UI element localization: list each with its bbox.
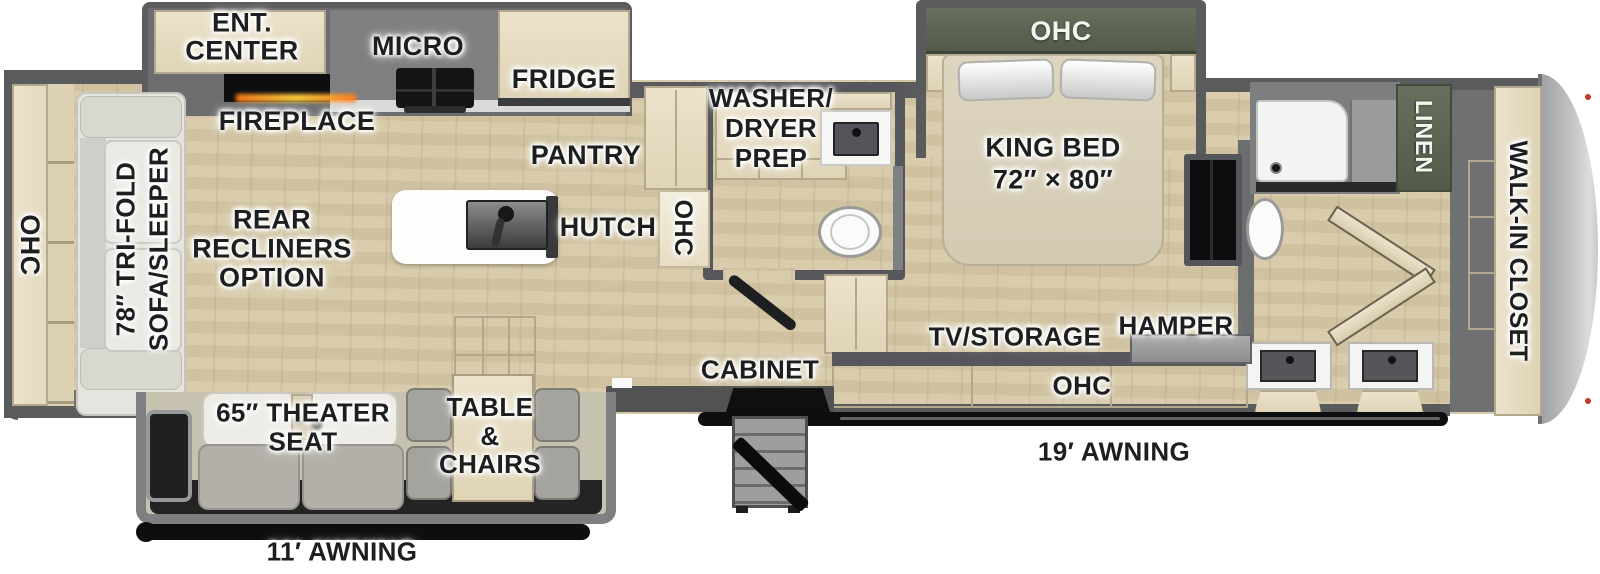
shower-glass-track: [1256, 182, 1396, 192]
label-awning-11: 11′ AWNING: [267, 538, 418, 565]
awning-rail-19-stripe: [840, 417, 1440, 420]
label-line: 65″ THEATER: [216, 398, 390, 427]
label-pantry: PANTRY: [531, 141, 641, 169]
shower-drain: [1270, 162, 1282, 174]
label-theater-seat: 65″ THEATER SEAT: [216, 398, 390, 455]
marker-light-bottom: [1585, 398, 1591, 404]
label-washer-dryer: WASHER/ DRYER PREP: [709, 84, 833, 174]
label-table-chairs: TABLE & CHAIRS: [439, 393, 541, 479]
fridge-counter-line: [498, 98, 630, 106]
cooktop: [396, 68, 474, 108]
label-tv-storage: TV/STORAGE: [929, 323, 1102, 350]
front-toilet: [1246, 198, 1284, 260]
cooktop-knobs: [404, 106, 466, 113]
label-line: &: [439, 422, 541, 451]
vanity-basin-left: [1260, 350, 1316, 382]
pillow-right: [1059, 58, 1156, 101]
label-ent-center: ENT. CENTER: [185, 9, 298, 66]
label-line: 78″ TRI-FOLD: [110, 147, 143, 351]
label-sofa: 78″ TRI-FOLD SOFA/SLEEPER: [110, 147, 175, 351]
label-line: KING BED: [985, 132, 1120, 164]
label-line: OPTION: [192, 264, 352, 293]
toilet-seat-ring: [830, 214, 870, 250]
label-line: WASHER/: [709, 84, 833, 114]
label-bottom-ohc: OHC: [1053, 372, 1112, 399]
label-line: TABLE: [439, 393, 541, 422]
step-cabinet-divider: [855, 278, 857, 350]
label-king-bed: KING BED 72″ × 80″: [985, 132, 1120, 197]
label-line: DRYER: [709, 114, 833, 144]
label-bed-ohc: OHC: [1030, 17, 1091, 45]
label-line: SEAT: [216, 427, 390, 456]
label-hutch: HUTCH: [560, 213, 657, 241]
bedroom-tv: [1190, 160, 1236, 260]
label-line: PREP: [709, 144, 833, 174]
rear-ohc-doors: [46, 84, 74, 406]
label-line: 72″ × 80″: [985, 164, 1120, 196]
label-fireplace: FIREPLACE: [219, 107, 376, 135]
bath-sink-faucet: [852, 128, 861, 137]
entry-door-opening: [726, 388, 830, 412]
pillow-left: [957, 58, 1054, 101]
label-line: CENTER: [185, 37, 298, 65]
vanity-faucet-left: [1286, 356, 1294, 364]
label-awning-19: 19′ AWNING: [1038, 438, 1190, 465]
dinette-window: [146, 410, 192, 502]
sofa-arm-top: [80, 96, 182, 138]
shower-glass: [1350, 100, 1396, 182]
label-line: REAR: [192, 205, 352, 234]
fireplace-glow: [236, 94, 356, 102]
label-mid-ohc: OHC: [670, 200, 696, 257]
label-hamper: HAMPER: [1118, 312, 1233, 339]
bottom-ohc-cabinet: [832, 364, 1248, 408]
pantry-divider: [675, 90, 677, 186]
vanity-faucet-right: [1388, 356, 1396, 364]
vanity-base-left: [1254, 390, 1322, 414]
awning-rail-11-cap: [136, 522, 156, 542]
vanity-base-right: [1356, 390, 1424, 414]
label-line: CHAIRS: [439, 450, 541, 479]
closet-dresser: [1468, 160, 1496, 330]
label-line: RECLINERS: [192, 234, 352, 263]
sofa-backrest: [80, 138, 106, 348]
sofa-arm-bottom: [80, 348, 182, 390]
marker-light-top: [1585, 94, 1591, 100]
label-walk-in-closet: WALK-IN CLOSET: [1505, 141, 1531, 362]
nightstand-right: [1170, 54, 1196, 92]
label-fridge: FRIDGE: [512, 65, 616, 93]
entry-counter-notch: [612, 378, 632, 388]
label-cabinet: CABINET: [701, 356, 819, 383]
label-recliners: REAR RECLINERS OPTION: [192, 205, 352, 292]
mid-bath-pocket-door: [893, 166, 903, 270]
entry-step-foot-left: [736, 506, 748, 513]
front-cap: [1538, 74, 1598, 424]
label-line: SOFA/SLEEPER: [142, 147, 175, 351]
label-micro: MICRO: [372, 32, 464, 60]
floorplan-canvas: ENT. CENTER MICRO FRIDGE FIREPLACE PANTR…: [0, 0, 1600, 574]
vanity-basin-right: [1362, 350, 1418, 382]
label-rear-ohc: OHC: [16, 214, 44, 275]
rear-wall-top: [4, 70, 154, 84]
label-linen: LINEN: [1412, 100, 1436, 174]
label-line: ENT.: [185, 9, 298, 37]
